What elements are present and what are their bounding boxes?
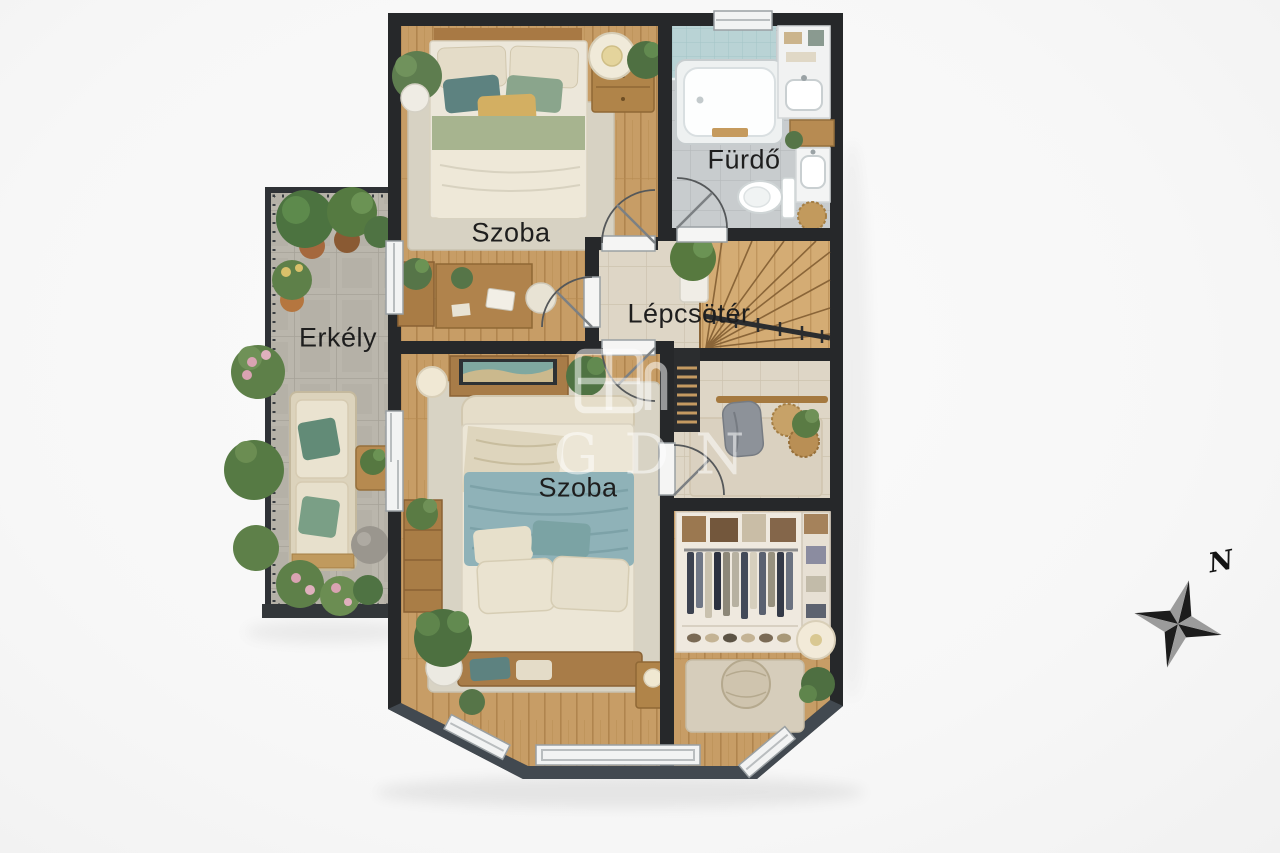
balcony [224,187,402,618]
duvet [432,150,585,218]
bathroom-vanity-right [796,148,830,202]
ladder-shelf [404,498,442,612]
coat-rack [716,396,828,403]
balcony-door [386,411,403,511]
wardrobe-room [676,512,835,732]
door-frame [584,277,600,327]
desk-plant [451,267,473,289]
room-label-bathroom: Fürdő [707,145,780,176]
decor-stone-ball [351,526,389,564]
media-sideboard [450,356,568,396]
accent-pillow [473,526,534,565]
door-frame [677,227,727,242]
bathtub [676,60,783,144]
bay-window-center [536,745,700,765]
window [714,11,772,30]
bathroom-vanity-top [778,26,830,118]
floorplan-screenshot: Szoba Fürdő Lépcsötér Erkély Szoba GDN N [0,0,1280,853]
balcony-side-table [356,446,390,490]
gdn-watermark: GDN [554,423,771,488]
small-plant [459,689,485,715]
decor-stone-ball-highlight [357,532,371,546]
balcony-flower-boxes [224,345,285,571]
room-label-balcony: Erkély [299,323,377,354]
pillow [477,558,556,614]
teal-pillow [531,520,591,558]
laundry-basket [798,202,826,230]
sofa-pillow [298,496,341,539]
bath-tray [712,128,748,137]
floor-lamp [797,621,835,659]
room-label-stairwell: Lépcsötér [627,299,750,330]
stair-flight-down [674,348,700,432]
balcony-window [386,241,403,314]
dome-lamp [417,367,447,397]
pillow [551,556,630,612]
bathroom-plant [785,131,803,149]
potted-plant [566,356,606,396]
compass-rose [1123,569,1232,678]
pouf [722,660,770,708]
laptop [486,288,515,311]
desk-console [398,258,556,328]
door-frame [602,236,655,251]
double-bed [430,28,587,218]
balcony-sofa [290,392,356,570]
sofa-pillow [297,417,341,461]
room-label-bedroom-top: Szoba [471,218,550,249]
sink [786,80,822,110]
compass-north-label: N [1206,545,1236,580]
staircase [700,241,830,348]
